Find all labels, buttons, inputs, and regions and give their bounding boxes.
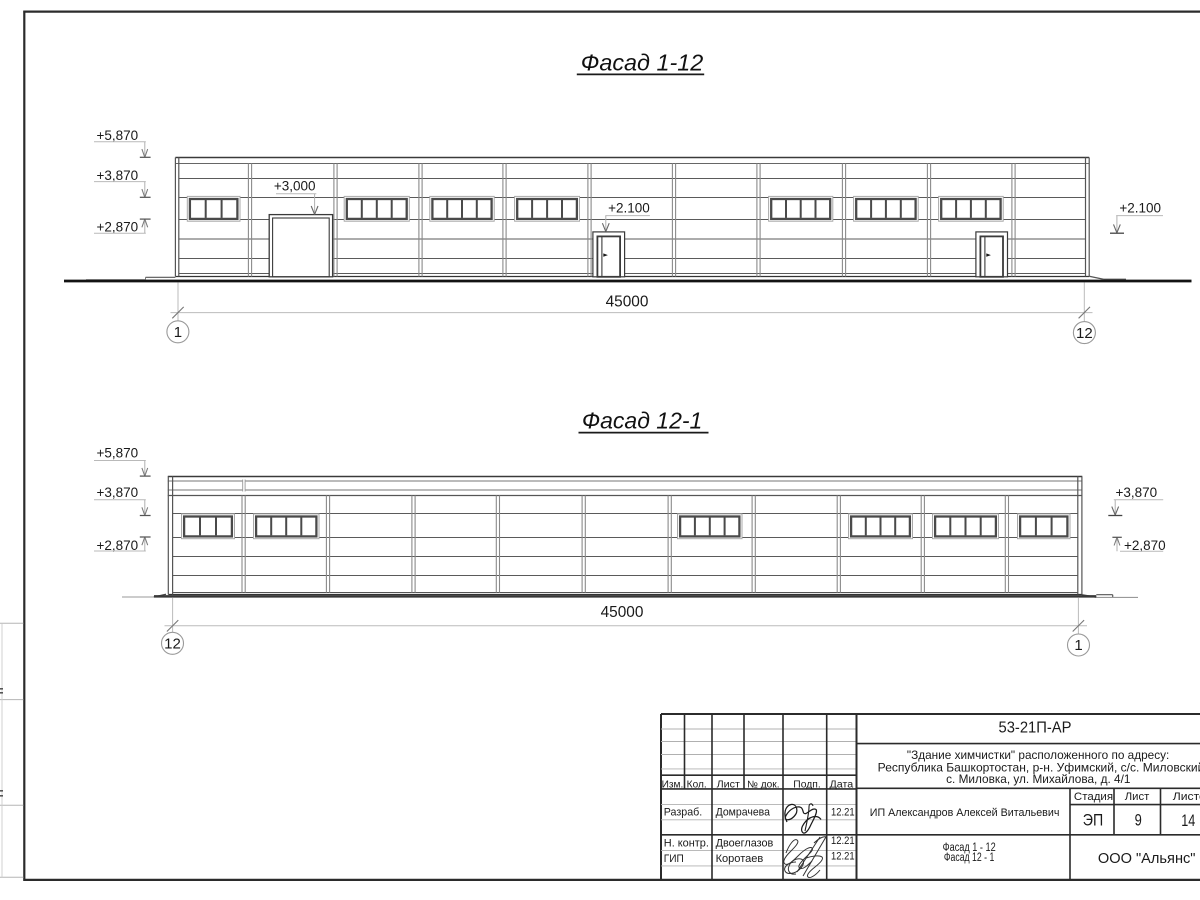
svg-text:ИП Александров Алексей Виталье: ИП Александров Алексей Витальевич (870, 807, 1060, 819)
svg-text:53-21П-АР: 53-21П-АР (999, 720, 1072, 737)
svg-text:+2,870: +2,870 (97, 220, 139, 235)
svg-text:№ док.: № док. (747, 779, 780, 790)
svg-text:+2.100: +2.100 (608, 201, 650, 216)
svg-text:1: 1 (174, 324, 182, 341)
svg-text:Коротаев: Коротаев (716, 853, 764, 865)
svg-text:+3,870: +3,870 (97, 168, 139, 183)
svg-text:12.21: 12.21 (831, 850, 855, 862)
svg-text:Дата: Дата (830, 779, 854, 790)
svg-text:12.21: 12.21 (831, 835, 855, 847)
svg-text:+2,870: +2,870 (1124, 538, 1166, 553)
svg-text:Стадия: Стадия (1074, 791, 1113, 803)
svg-text:с. Миловка, ул. Михайлова, д.: с. Миловка, ул. Михайлова, д. 4/1 (946, 773, 1130, 786)
svg-text:Листов: Листов (1173, 791, 1200, 803)
svg-text:9: 9 (1135, 812, 1142, 830)
svg-text:Лист: Лист (1125, 791, 1150, 803)
svg-text:ЭП: ЭП (1083, 812, 1103, 830)
svg-text:+3,870: +3,870 (1116, 485, 1158, 500)
svg-text:Изм.: Изм. (662, 779, 684, 790)
svg-text:Фасад 12 - 1: Фасад 12 - 1 (944, 852, 994, 864)
svg-text:Подп.: Подп. (793, 779, 820, 790)
svg-text:+3,870: +3,870 (97, 485, 139, 500)
svg-text:Кол.: Кол. (687, 779, 707, 790)
svg-text:ГИП: ГИП (664, 853, 684, 865)
svg-text:+2.100: +2.100 (1119, 201, 1161, 216)
svg-text:45000: 45000 (601, 604, 644, 621)
svg-text:Двоеглазов: Двоеглазов (716, 838, 774, 850)
svg-text:+3,000: +3,000 (274, 178, 316, 193)
svg-text:1: 1 (1074, 637, 1082, 654)
svg-text:12.21: 12.21 (831, 807, 855, 819)
svg-text:45000: 45000 (606, 293, 649, 310)
svg-text:"Здание химчистки" расположенн: "Здание химчистки" расположенного по адр… (907, 749, 1169, 762)
svg-text:12: 12 (164, 636, 181, 653)
svg-text:Н. контр.: Н. контр. (664, 838, 709, 850)
svg-text:Фасад 12-1: Фасад 12-1 (582, 407, 703, 433)
svg-text:Разраб.: Разраб. (664, 807, 702, 819)
svg-text:12: 12 (1076, 325, 1093, 342)
svg-text:+5,870: +5,870 (97, 128, 139, 143)
svg-text:+5,870: +5,870 (97, 446, 139, 461)
svg-text:Домрачева: Домрачева (716, 807, 771, 819)
svg-text:Фасад 1-12: Фасад 1-12 (581, 50, 704, 76)
svg-text:14: 14 (1181, 812, 1195, 830)
svg-text:Лист: Лист (717, 779, 741, 790)
svg-text:ООО "Альянс": ООО "Альянс" (1098, 851, 1196, 867)
